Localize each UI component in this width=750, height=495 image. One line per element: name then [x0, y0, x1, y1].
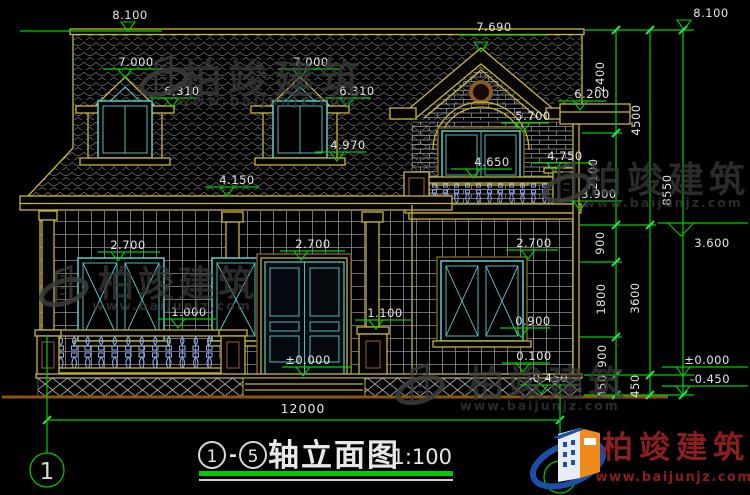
- axis-bubble-1-label: 1: [40, 459, 55, 485]
- brand-logo: 柏竣建筑 www.baijunjz.com: [527, 428, 750, 495]
- svg-text:3600: 3600: [628, 282, 642, 313]
- svg-text:0.900: 0.900: [515, 314, 550, 328]
- svg-text:1.100: 1.100: [367, 306, 402, 320]
- elevation-marker-ridge-left: 8.100: [20, 8, 162, 31]
- svg-text:2.700: 2.700: [295, 237, 330, 251]
- svg-text:2.700: 2.700: [110, 238, 145, 252]
- window-right: [433, 257, 531, 347]
- gable-vent: [471, 82, 491, 102]
- svg-text:5.700: 5.700: [515, 109, 550, 123]
- right-eave-band: [560, 104, 630, 124]
- title-underline: [199, 471, 453, 476]
- svg-text:-0.450: -0.450: [690, 372, 730, 386]
- svg-text:4500: 4500: [629, 104, 643, 135]
- svg-text:±0.000: ±0.000: [285, 353, 331, 367]
- svg-text:900: 900: [593, 231, 607, 254]
- title-dash: -: [229, 444, 237, 466]
- svg-text:www.baijunjz.com: www.baijunjz.com: [178, 94, 359, 109]
- brand-logo-text: 柏竣建筑: [602, 430, 750, 466]
- svg-text:4.650: 4.650: [474, 155, 509, 169]
- svg-text:7.690: 7.690: [476, 20, 511, 34]
- entry-steps: [243, 378, 365, 397]
- elevation-marker-ridge-right: 8.100: [677, 6, 729, 30]
- cad-elevation-canvas: 8.100 8.100 7.690 7.000 6.310 7.000 6.31…: [0, 0, 750, 495]
- svg-text:7.000: 7.000: [118, 55, 153, 69]
- svg-text:2.700: 2.700: [516, 236, 551, 250]
- svg-text:4.750: 4.750: [547, 149, 582, 163]
- svg-text:5: 5: [248, 447, 259, 467]
- svg-text:1: 1: [207, 447, 218, 467]
- svg-text:4.150: 4.150: [219, 173, 254, 187]
- svg-text:450: 450: [628, 374, 642, 397]
- title-scale: 1:100: [391, 445, 452, 469]
- svg-text:4.970: 4.970: [330, 138, 365, 152]
- svg-text:1800: 1800: [594, 283, 608, 314]
- svg-text:2400: 2400: [593, 61, 607, 92]
- title-text: 轴立面图: [268, 438, 400, 474]
- svg-text:www.baijunjz.com: www.baijunjz.com: [92, 298, 252, 313]
- elevation-marker-floor2: 3.600: [658, 223, 748, 250]
- brand-logo-url: www.baijunjz.com: [596, 470, 750, 485]
- porch-balusters: [58, 336, 220, 368]
- svg-text:8.100: 8.100: [693, 6, 728, 20]
- svg-text:www.baijunjz.com: www.baijunjz.com: [583, 195, 743, 210]
- svg-text:12000: 12000: [281, 401, 326, 416]
- svg-text:8.100: 8.100: [112, 8, 147, 22]
- svg-text:www.baijunjz.com: www.baijunjz.com: [460, 398, 620, 413]
- drawing-title: 1 - 5 轴立面图 1:100: [199, 438, 453, 481]
- svg-text:0.100: 0.100: [516, 349, 551, 363]
- svg-text:±0.000: ±0.000: [684, 353, 730, 367]
- svg-text:3.600: 3.600: [694, 236, 729, 250]
